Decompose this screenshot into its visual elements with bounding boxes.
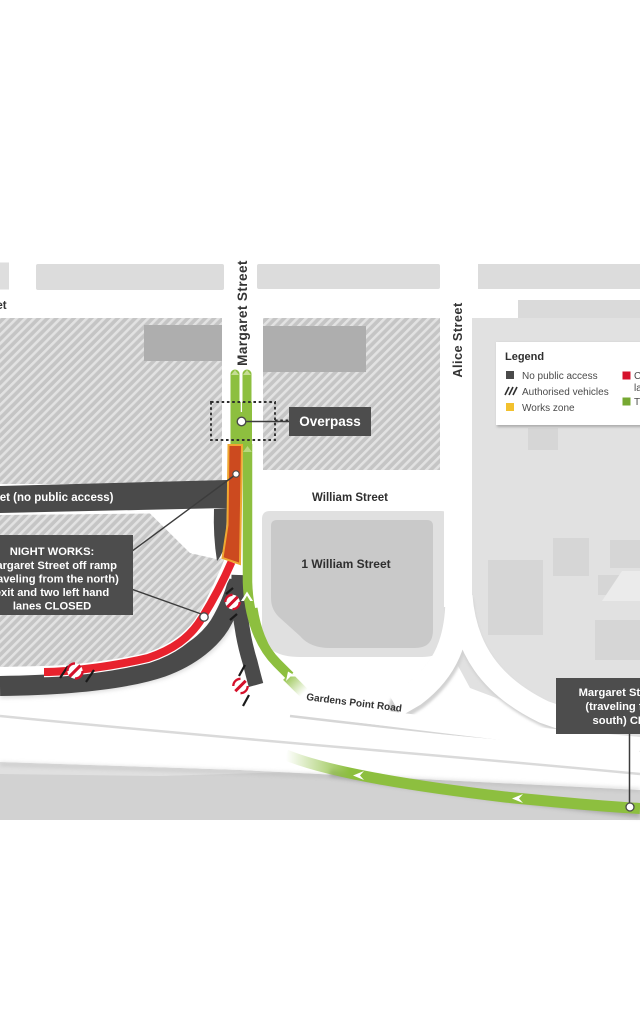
svg-text:lanes CLOSED: lanes CLOSED <box>13 601 91 613</box>
svg-text:Margaret Street: Margaret Street <box>235 260 250 366</box>
svg-text:Works zone: Works zone <box>522 403 575 414</box>
svg-text:Street: Street <box>0 300 7 312</box>
svg-text:Closed: Closed <box>634 371 640 382</box>
svg-text:lanes: lanes <box>634 383 640 394</box>
svg-text:Alice Street: Alice Street <box>450 302 465 378</box>
svg-text:Traffic: Traffic <box>634 397 640 408</box>
svg-text:No public access: No public access <box>522 371 598 382</box>
svg-text:William Street (no public acce: William Street (no public access) <box>0 492 114 504</box>
svg-text:south) CLOSED: south) CLOSED <box>593 715 640 727</box>
svg-text:Legend: Legend <box>505 351 544 363</box>
svg-text:1 William Street: 1 William Street <box>301 557 390 571</box>
svg-text:(traveling from the: (traveling from the <box>585 701 640 713</box>
svg-text:NIGHT WORKS:: NIGHT WORKS: <box>10 546 95 558</box>
svg-text:Margaret St on ramp: Margaret St on ramp <box>579 687 640 699</box>
svg-text:(traveling from the north): (traveling from the north) <box>0 574 119 586</box>
svg-text:William Street: William Street <box>312 492 388 504</box>
svg-text:Margaret Street off ramp: Margaret Street off ramp <box>0 560 117 572</box>
svg-text:exit and two left hand: exit and two left hand <box>0 587 109 599</box>
svg-text:Authorised vehicles: Authorised vehicles <box>522 387 609 398</box>
svg-text:Overpass: Overpass <box>299 414 361 429</box>
